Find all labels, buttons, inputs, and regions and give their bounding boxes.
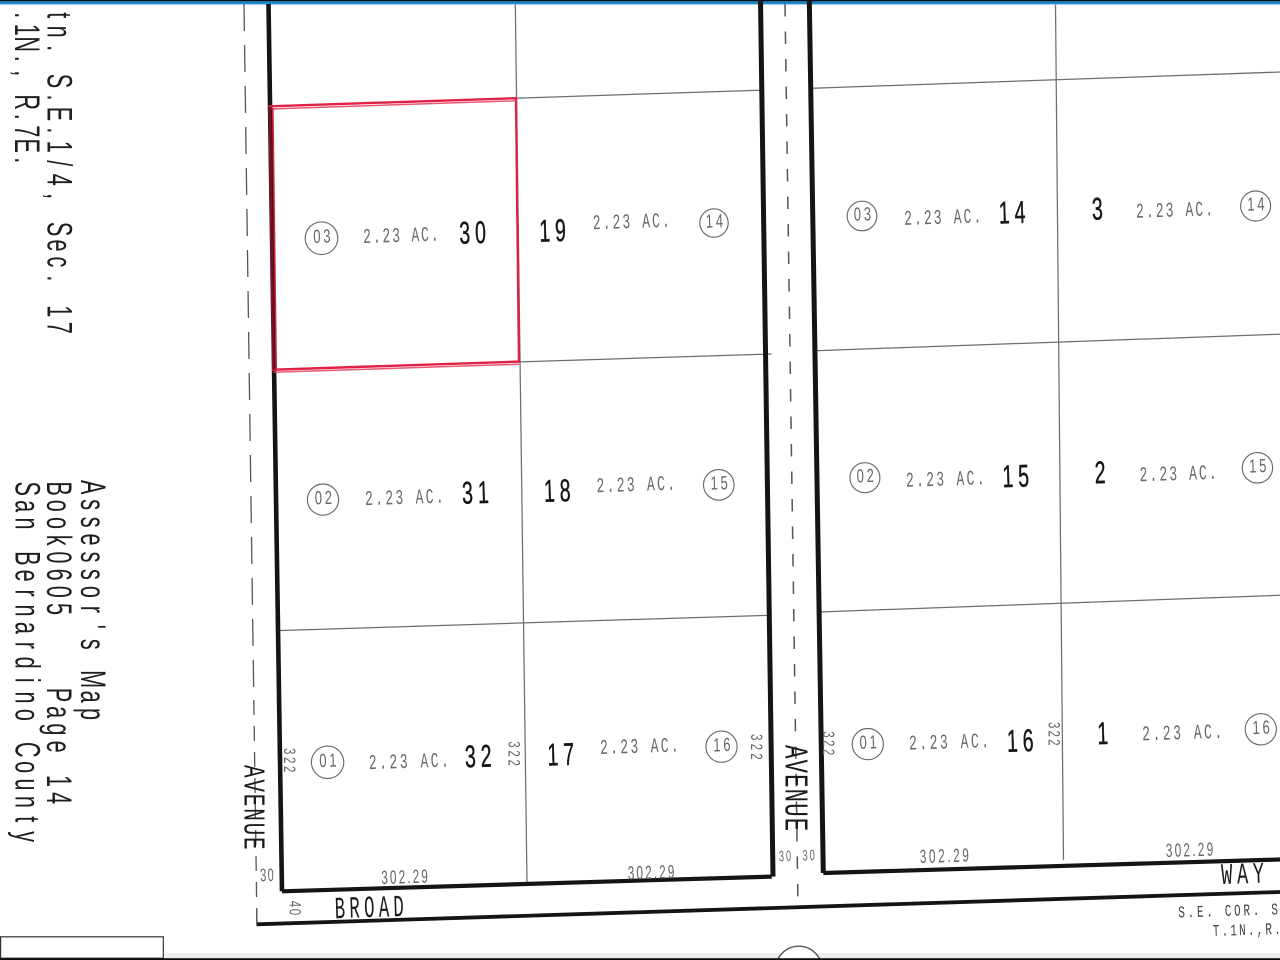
svg-text:s: s (73, 517, 111, 528)
svg-text:o: o (7, 761, 45, 773)
svg-text:k: k (39, 535, 77, 546)
svg-text:u: u (7, 778, 45, 790)
svg-text:2.23 AC.: 2.23 AC. (600, 735, 682, 762)
svg-text:C: C (7, 742, 45, 758)
svg-text:s: s (73, 639, 111, 650)
svg-text:c: c (39, 257, 77, 268)
svg-text:1: 1 (39, 305, 77, 317)
svg-text:a: a (7, 500, 45, 513)
svg-text:p: p (73, 708, 111, 720)
svg-text:2.23 AC.: 2.23 AC. (365, 486, 447, 513)
svg-text:16: 16 (713, 734, 734, 756)
svg-text:2.23 AC.: 2.23 AC. (363, 224, 441, 250)
svg-text:302.29: 302.29 (628, 862, 677, 884)
svg-text:A: A (73, 480, 111, 495)
svg-text:r: r (73, 606, 111, 613)
svg-text:322: 322 (504, 741, 523, 768)
svg-text:s: s (73, 499, 111, 510)
svg-text:30: 30 (260, 865, 276, 886)
svg-text:a: a (7, 622, 45, 635)
svg-text:4: 4 (39, 174, 77, 186)
svg-text:17: 17 (547, 736, 580, 773)
svg-text:2.23 AC.: 2.23 AC. (596, 473, 678, 500)
svg-text:n: n (7, 691, 45, 703)
svg-text:2.23 AC.: 2.23 AC. (1136, 198, 1216, 225)
svg-text:31: 31 (461, 474, 494, 511)
svg-text:02: 02 (314, 487, 335, 509)
svg-text:19: 19 (539, 212, 572, 249)
svg-text:18: 18 (543, 472, 576, 509)
svg-text:2.23 AC.: 2.23 AC. (904, 206, 984, 233)
svg-text:322: 322 (279, 748, 298, 775)
svg-text:2.23 AC.: 2.23 AC. (1139, 462, 1219, 489)
svg-text:16: 16 (1006, 722, 1039, 759)
svg-text:03: 03 (853, 204, 874, 226)
svg-text:2.23 AC.: 2.23 AC. (592, 210, 672, 237)
svg-text:e: e (39, 239, 77, 251)
svg-text:15: 15 (710, 473, 731, 495)
svg-text:n: n (7, 517, 45, 529)
svg-text:.: . (7, 157, 45, 163)
svg-text:B: B (7, 551, 45, 565)
svg-text:BROAD: BROAD (334, 890, 408, 928)
svg-text:2.23 AC.: 2.23 AC. (906, 467, 988, 494)
svg-text:s: s (73, 552, 111, 563)
svg-text:S.E. COR. S: S.E. COR. S (1178, 901, 1280, 923)
svg-text:302.29: 302.29 (381, 867, 430, 889)
svg-text:T.1N.,R.7: T.1N.,R.7 (1213, 921, 1280, 942)
svg-text:r: r (7, 589, 45, 596)
svg-text:t: t (7, 816, 45, 822)
svg-text:03: 03 (313, 226, 334, 248)
svg-text:02: 02 (856, 465, 877, 487)
svg-text:e: e (73, 534, 111, 546)
svg-text:3: 3 (1091, 190, 1106, 226)
svg-text:30: 30 (779, 848, 794, 865)
svg-text:o: o (7, 709, 45, 721)
svg-text:7: 7 (39, 322, 77, 334)
svg-text:,: , (7, 70, 45, 76)
svg-text:.: . (7, 12, 45, 18)
svg-text:e: e (7, 570, 45, 582)
svg-text:1: 1 (7, 24, 45, 36)
svg-text:7: 7 (7, 125, 45, 137)
svg-text:.: . (7, 114, 45, 120)
svg-text:.: . (7, 56, 45, 62)
svg-text:1: 1 (1097, 715, 1112, 751)
svg-text:14: 14 (1247, 194, 1268, 216)
svg-text:302.29: 302.29 (920, 846, 972, 868)
svg-text:i: i (7, 678, 45, 683)
svg-text:WAY: WAY (1221, 858, 1269, 893)
svg-text:01: 01 (859, 732, 880, 754)
svg-text:E: E (7, 139, 45, 153)
svg-text:15: 15 (1002, 457, 1035, 494)
svg-text:y: y (7, 831, 45, 842)
svg-text:M: M (73, 670, 111, 688)
svg-text:01: 01 (319, 750, 340, 772)
svg-text:r: r (7, 642, 45, 649)
svg-text:2.23 AC.: 2.23 AC. (1142, 721, 1225, 748)
svg-text:d: d (7, 657, 45, 669)
svg-text:.: . (39, 275, 77, 281)
svg-text:2.23 AC.: 2.23 AC. (909, 730, 992, 757)
svg-text:40: 40 (285, 901, 304, 917)
svg-text:o: o (73, 586, 111, 598)
svg-text:16: 16 (1252, 717, 1273, 739)
svg-text:n: n (7, 604, 45, 616)
svg-text:30: 30 (802, 847, 817, 864)
svg-text:2.23 AC.: 2.23 AC. (368, 750, 451, 777)
svg-text:n: n (7, 796, 45, 808)
svg-text:s: s (73, 569, 111, 580)
svg-text:N: N (7, 36, 45, 52)
svg-text:,: , (39, 193, 77, 199)
svg-text:14: 14 (705, 211, 726, 233)
svg-text:g: g (39, 723, 77, 735)
svg-text:': ' (73, 625, 111, 629)
svg-text:302.29: 302.29 (1166, 840, 1216, 862)
svg-text:30: 30 (459, 214, 492, 251)
svg-text:14: 14 (998, 194, 1031, 231)
svg-text:S: S (7, 481, 45, 495)
svg-text:a: a (73, 691, 111, 704)
svg-text:322: 322 (1044, 722, 1063, 748)
svg-text:2: 2 (1094, 454, 1109, 490)
svg-text:AVENUE: AVENUE (235, 765, 270, 851)
svg-text:322: 322 (818, 731, 837, 757)
svg-text:S: S (39, 222, 77, 236)
svg-text:322: 322 (746, 734, 765, 763)
svg-text:R: R (7, 94, 45, 110)
svg-text:32: 32 (464, 738, 497, 775)
svg-text:AVENUE: AVENUE (775, 745, 811, 832)
svg-text:15: 15 (1249, 456, 1270, 478)
